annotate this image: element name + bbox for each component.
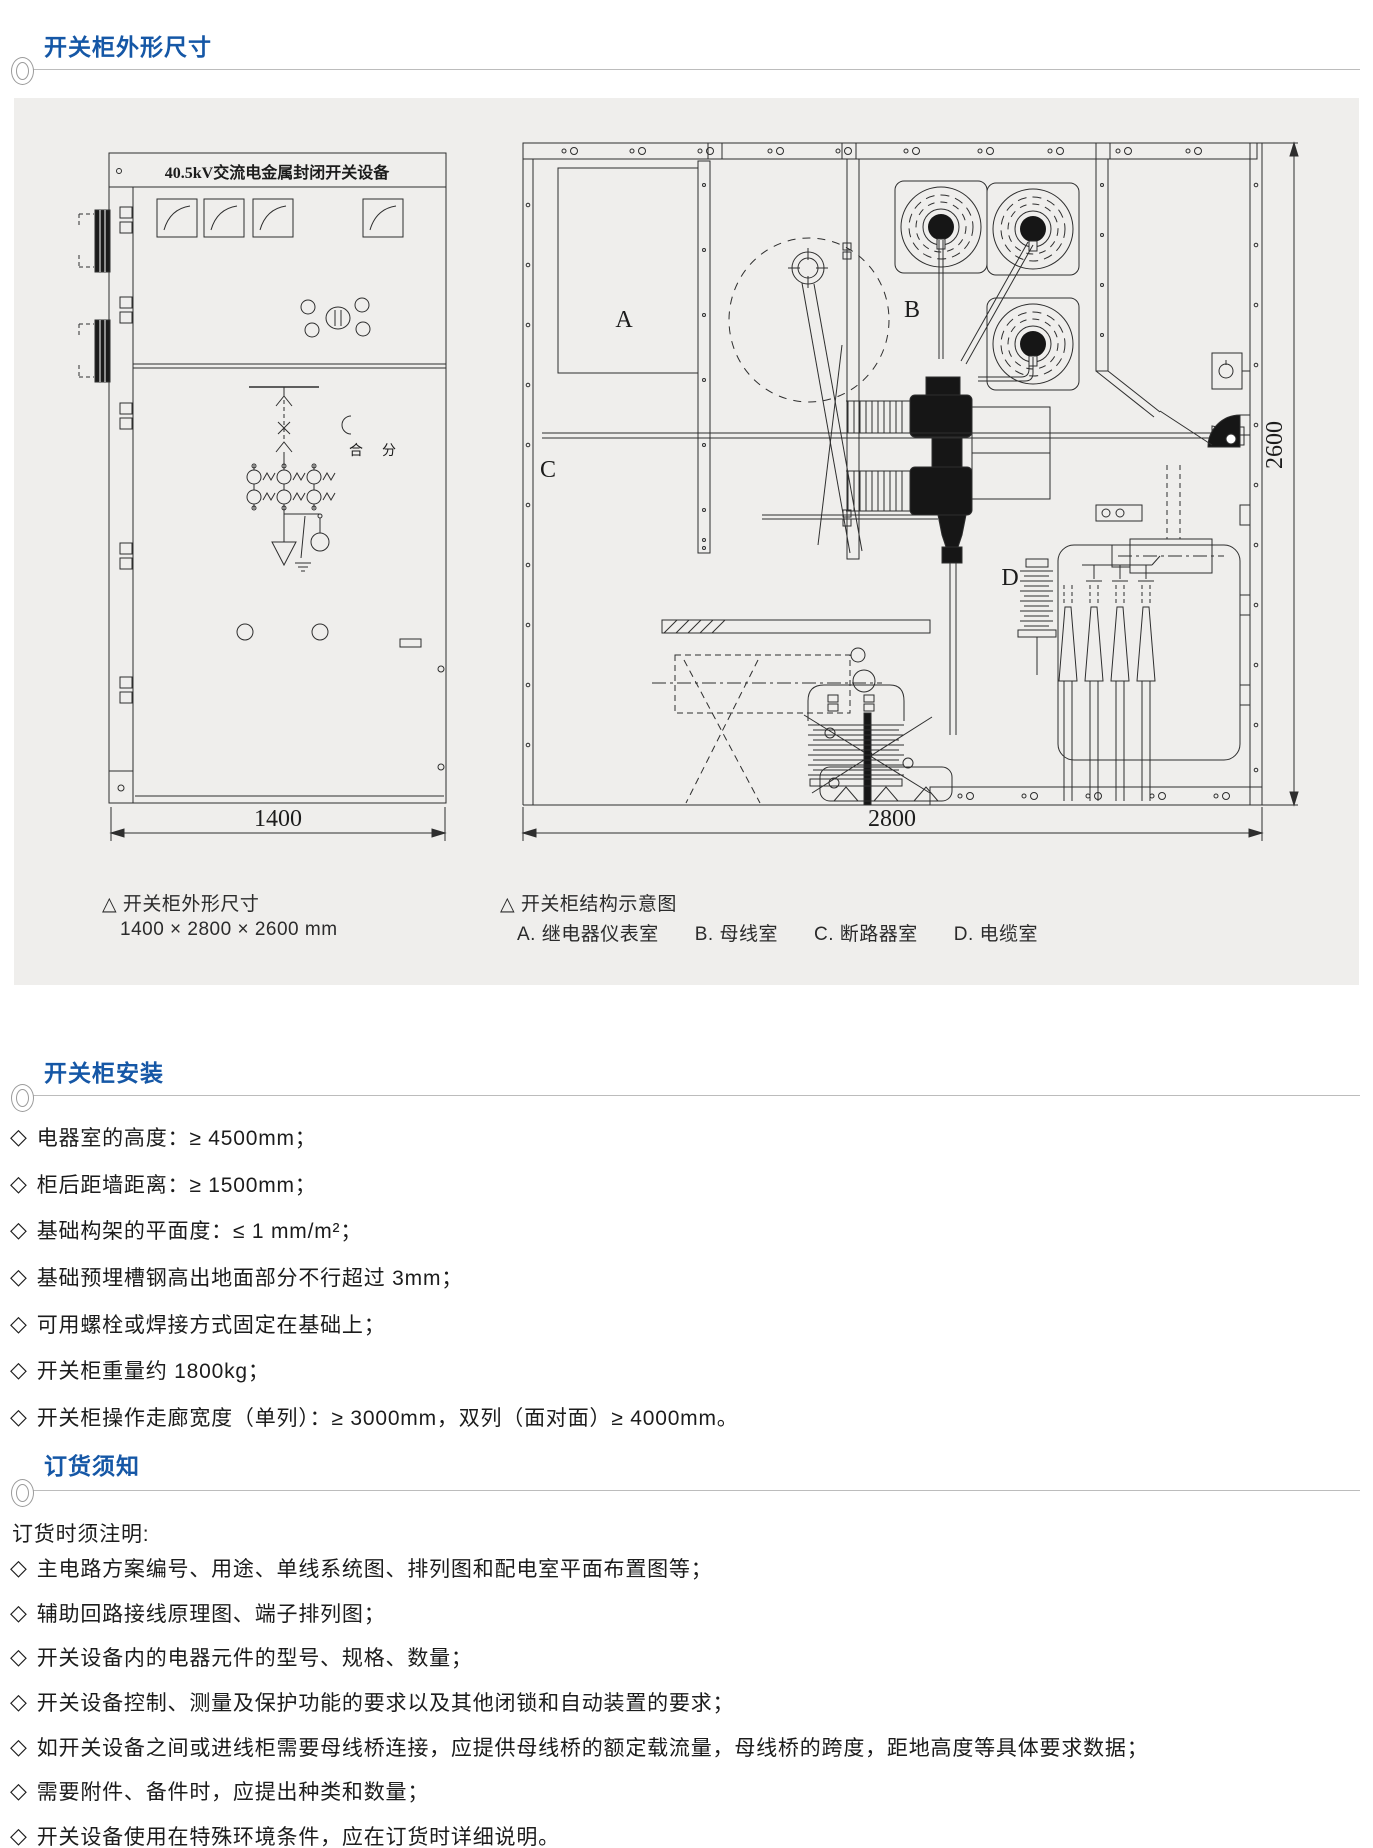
list-item: ◇ 柜后距墙距离：≥ 1500mm； [10, 1161, 739, 1208]
list-item-text: 开关柜操作走廊宽度（单列）：≥ 3000mm，双列（面对面）≥ 4000mm。 [37, 1402, 739, 1432]
list-item-text: 电器室的高度：≥ 4500mm； [37, 1122, 317, 1152]
diamond-bullet: ◇ [10, 1734, 28, 1760]
ordering-list: ◇ 主电路方案编号、用途、单线系统图、排列图和配电室平面布置图等； ◇ 辅助回路… [10, 1546, 1149, 1848]
list-item-text: 开关设备内的电器元件的型号、规格、数量； [37, 1642, 473, 1672]
enclosure-frame [523, 143, 1262, 805]
section-divider [30, 1490, 1360, 1491]
list-item: ◇ 可用螺栓或焊接方式固定在基础上； [10, 1300, 739, 1347]
list-item-text: 主电路方案编号、用途、单线系统图、排列图和配电室平面布置图等； [37, 1553, 713, 1583]
breaker-truck [652, 620, 952, 805]
open-close-indicator [342, 416, 351, 434]
cable-terminations [1058, 545, 1240, 801]
diamond-bullet: ◇ [10, 1689, 28, 1715]
list-item-text: 柜后距墙距离：≥ 1500mm； [37, 1169, 317, 1199]
diamond-bullet: ◇ [10, 1171, 28, 1197]
height-dimension [1259, 143, 1298, 805]
list-item: ◇ 基础预埋槽钢高出地面部分不行超过 3mm； [10, 1254, 739, 1301]
room-legend-item: D. 电缆室 [954, 919, 1038, 946]
diamond-bullet: ◇ [10, 1778, 28, 1804]
side-hinge-blocks [79, 210, 110, 382]
diamond-bullet: ◇ [10, 1404, 28, 1430]
front-view-size: 1400 × 2800 × 2600 mm [120, 919, 338, 941]
width-dim-text: 2800 [868, 806, 916, 832]
close-label: 合 [349, 442, 363, 458]
room-b-label: B [904, 297, 920, 323]
indicator-lamps [301, 298, 370, 337]
room-legend-item: C. 断路器室 [814, 919, 918, 946]
relay-room [558, 161, 710, 553]
catalog-page: 开关柜外形尺寸 [0, 0, 1373, 1848]
section-bullet-icon [11, 1084, 34, 1112]
height-dim-text: 2600 [1262, 421, 1288, 469]
room-c-label: C [540, 457, 556, 483]
busbar-bushings [895, 181, 1079, 390]
section-view-drawing: A B C D 2800 2600 [512, 115, 1302, 850]
ordering-intro: 订货时须注明: [12, 1518, 149, 1548]
list-item-text: 基础预埋槽钢高出地面部分不行超过 3mm； [37, 1262, 463, 1292]
diamond-bullet: ◇ [10, 1217, 28, 1243]
list-item: ◇ 基础构架的平面度：≤ 1 mm/m²； [10, 1207, 739, 1254]
list-item-text: 基础构架的平面度：≤ 1 mm/m²； [37, 1215, 362, 1245]
section-bullet-icon [11, 57, 34, 85]
list-item-text: 如开关设备之间或进线柜需要母线桥连接，应提供母线桥的额定载流量，母线桥的跨度，距… [37, 1732, 1149, 1762]
mimic-diagram [247, 387, 335, 571]
diamond-bullet: ◇ [10, 1124, 28, 1150]
list-item: ◇ 开关柜操作走廊宽度（单列）：≥ 3000mm，双列（面对面）≥ 4000mm… [10, 1394, 739, 1441]
list-item: ◇ 开关设备控制、测量及保护功能的要求以及其他闭锁和自动装置的要求； [10, 1680, 1149, 1725]
section-title-installation: 开关柜安装 [44, 1054, 164, 1088]
list-item: ◇ 开关设备使用在特殊环境条件，应在订货时详细说明。 [10, 1814, 1149, 1848]
list-item-text: 需要附件、备件时，应提出种类和数量； [37, 1776, 429, 1806]
diamond-bullet: ◇ [10, 1357, 28, 1383]
list-item: ◇ 辅助回路接线原理图、端子排列图； [10, 1591, 1149, 1636]
diamond-bullet: ◇ [10, 1311, 28, 1337]
panel-meters [157, 199, 403, 237]
open-label: 分 [382, 442, 396, 458]
section-title-dimensions: 开关柜外形尺寸 [44, 28, 212, 62]
section-divider [30, 1095, 1360, 1096]
list-item: ◇ 开关柜重量约 1800kg； [10, 1347, 739, 1394]
diamond-bullet: ◇ [10, 1823, 28, 1848]
list-item-text: 辅助回路接线原理图、端子排列图； [37, 1598, 386, 1628]
list-item: ◇ 如开关设备之间或进线柜需要母线桥连接，应提供母线桥的额定载流量，母线桥的跨度… [10, 1724, 1149, 1769]
section-divider [30, 69, 1360, 70]
list-item: ◇ 电器室的高度：≥ 4500mm； [10, 1114, 739, 1161]
diamond-bullet: ◇ [10, 1644, 28, 1670]
door-swing-arc [729, 238, 889, 553]
room-legend: A. 继电器仪表室B. 母线室C. 断路器室D. 电缆室 [517, 919, 1038, 946]
front-view-caption: △ 开关柜外形尺寸 [102, 889, 259, 916]
operation-knobs [109, 624, 444, 791]
list-item: ◇ 需要附件、备件时，应提出种类和数量； [10, 1769, 1149, 1814]
list-item: ◇ 开关设备内的电器元件的型号、规格、数量； [10, 1635, 1149, 1680]
section-view-caption: △ 开关柜结构示意图 [500, 889, 677, 916]
list-item-text: 开关设备使用在特殊环境条件，应在订货时详细说明。 [37, 1821, 560, 1848]
room-legend-item: B. 母线室 [695, 919, 778, 946]
list-item-text: 开关设备控制、测量及保护功能的要求以及其他闭锁和自动装置的要求； [37, 1687, 735, 1717]
door-hinges [120, 207, 132, 703]
room-a-label: A [615, 307, 633, 333]
nameplate-text: 40.5kV交流电金属封闭开关设备 [165, 163, 390, 182]
front-view-drawing: 40.5kV交流电金属封闭开关设备 合 分 1400 [75, 115, 450, 850]
circuit-breaker [846, 377, 1050, 735]
section-bullet-icon [11, 1479, 34, 1507]
diamond-bullet: ◇ [10, 1555, 28, 1581]
section-title-ordering: 订货须知 [44, 1447, 140, 1481]
room-d-label: D [1001, 565, 1018, 591]
list-item-text: 开关柜重量约 1800kg； [37, 1355, 270, 1385]
list-item: ◇ 主电路方案编号、用途、单线系统图、排列图和配电室平面布置图等； [10, 1546, 1149, 1591]
current-transformer [1096, 465, 1224, 573]
diamond-bullet: ◇ [10, 1600, 28, 1626]
post-insulator [1018, 559, 1056, 675]
installation-list: ◇ 电器室的高度：≥ 4500mm； ◇ 柜后距墙距离：≥ 1500mm； ◇ … [10, 1114, 739, 1440]
diamond-bullet: ◇ [10, 1264, 28, 1290]
room-legend-item: A. 继电器仪表室 [517, 919, 659, 946]
list-item-text: 可用螺栓或焊接方式固定在基础上； [37, 1309, 386, 1339]
width-dim-text: 1400 [254, 806, 302, 832]
